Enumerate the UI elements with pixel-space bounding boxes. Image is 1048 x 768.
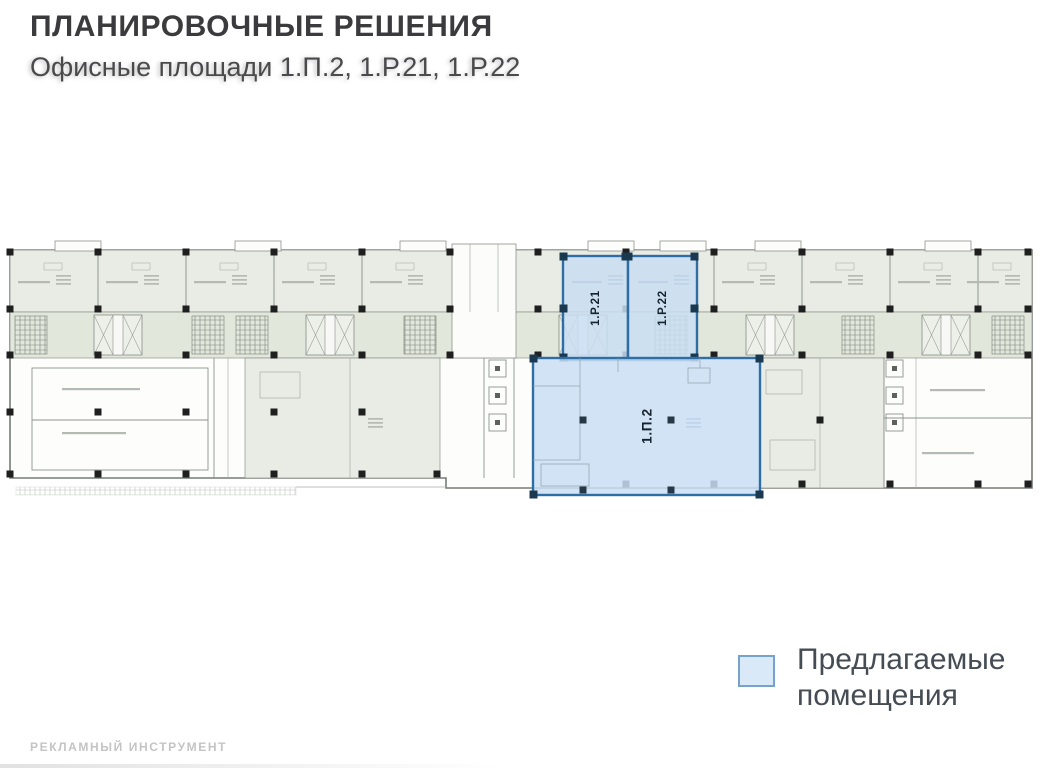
annotation-mini	[760, 283, 775, 285]
column	[359, 409, 366, 416]
annotation-mini	[408, 275, 423, 277]
annotation-mini	[320, 275, 335, 277]
annotation-mini	[320, 279, 335, 281]
annotation-dash	[194, 281, 226, 283]
elevator-core	[15, 316, 47, 354]
annotation-dash	[282, 281, 314, 283]
column	[183, 409, 190, 416]
elevator-core	[842, 316, 874, 354]
column	[7, 409, 14, 416]
annotation-dash	[62, 388, 140, 390]
footer-brand: РЕКЛАМНЫЙ ИНСТРУМЕНТ	[30, 740, 227, 754]
column	[1025, 352, 1032, 359]
column	[975, 306, 982, 313]
annotation-mini	[144, 275, 159, 277]
facade-bay	[755, 241, 801, 251]
column	[95, 409, 102, 416]
annotation-mini	[320, 283, 335, 285]
facade-bay	[925, 241, 971, 251]
annotation-dash	[62, 432, 126, 434]
column	[271, 249, 278, 256]
column	[359, 471, 366, 478]
column	[183, 352, 190, 359]
column	[535, 306, 542, 313]
column	[817, 417, 824, 424]
column	[711, 306, 718, 313]
elevator-core	[404, 316, 436, 354]
stair-core	[306, 315, 354, 355]
column	[975, 481, 982, 488]
column	[95, 249, 102, 256]
column	[434, 471, 441, 478]
room-label-1p2: 1.П.2	[640, 408, 655, 444]
legend-label: Предлагаемые помещения	[797, 642, 1032, 714]
annotation-mini	[408, 283, 423, 285]
annotation-mini	[232, 275, 247, 277]
column	[975, 249, 982, 256]
annotation-dash	[370, 281, 402, 283]
annotation-mini	[56, 279, 71, 281]
facade-bay	[55, 241, 101, 251]
room-label-1r22: 1.Р.22	[657, 290, 669, 326]
column	[1025, 306, 1032, 313]
column	[975, 352, 982, 359]
annotation-mini	[1005, 283, 1020, 285]
annotation-mini	[848, 283, 863, 285]
column	[887, 352, 894, 359]
column	[95, 471, 102, 478]
annotation-mini	[936, 279, 951, 281]
column	[799, 249, 806, 256]
annotation-dash	[922, 452, 974, 454]
annotation-mini	[232, 279, 247, 281]
annotation-dash	[722, 281, 754, 283]
annotation-dash	[18, 281, 50, 283]
annotation-mini	[368, 426, 383, 428]
facade-bay	[400, 241, 446, 251]
column	[799, 306, 806, 313]
annotation-dash	[967, 281, 999, 283]
annotation-mini	[936, 283, 951, 285]
stair-core	[746, 315, 794, 355]
column	[711, 249, 718, 256]
column	[183, 471, 190, 478]
column	[1025, 481, 1032, 488]
column	[799, 352, 806, 359]
column	[271, 471, 278, 478]
annotation-mini	[936, 275, 951, 277]
column	[359, 249, 366, 256]
annotation-mini	[56, 283, 71, 285]
column	[7, 249, 14, 256]
column	[447, 249, 454, 256]
column	[7, 306, 14, 313]
elevator-core	[236, 316, 268, 354]
column	[271, 352, 278, 359]
building-shell	[10, 244, 1032, 488]
column	[359, 352, 366, 359]
highlighted-room-1r21: 1.Р.21	[560, 253, 630, 362]
elevator-core	[192, 316, 224, 354]
annotation-dash	[898, 281, 930, 283]
column	[7, 471, 14, 478]
column	[271, 409, 278, 416]
stair-core	[922, 315, 970, 355]
highlighted-room-1r22: 1.Р.22	[625, 253, 699, 362]
facade-bay	[660, 241, 706, 251]
legend-swatch	[738, 655, 775, 687]
column	[359, 306, 366, 313]
annotation-mini	[144, 279, 159, 281]
annotation-mini	[760, 275, 775, 277]
annotation-mini	[368, 418, 383, 420]
annotation-dash	[106, 281, 138, 283]
column	[183, 249, 190, 256]
slide: ПЛАНИРОВОЧНЫЕ РЕШЕНИЯ Офисные площади 1.…	[0, 0, 1048, 768]
column	[95, 306, 102, 313]
elevator-core	[992, 316, 1024, 354]
column	[535, 249, 542, 256]
annotation-mini	[232, 283, 247, 285]
column	[7, 352, 14, 359]
annotation-mini	[760, 279, 775, 281]
annotation-mini	[848, 275, 863, 277]
column	[1025, 249, 1032, 256]
annotation-mini	[1005, 279, 1020, 281]
annotation-dash	[930, 389, 985, 391]
column	[447, 352, 454, 359]
room-label-1r21: 1.Р.21	[590, 290, 602, 326]
column	[271, 306, 278, 313]
annotation-mini	[56, 275, 71, 277]
annotation-mini	[848, 279, 863, 281]
column	[799, 481, 806, 488]
column	[887, 249, 894, 256]
column	[887, 481, 894, 488]
column	[95, 352, 102, 359]
highlighted-room-1p2: 1.П.2	[530, 355, 764, 499]
stair-core	[94, 315, 142, 355]
annotation-mini	[1005, 275, 1020, 277]
annotation-mini	[144, 283, 159, 285]
annotation-mini	[408, 279, 423, 281]
column	[887, 306, 894, 313]
annotation-mini	[368, 422, 383, 424]
legend: Предлагаемые помещения	[738, 642, 1032, 714]
annotation-dash	[810, 281, 842, 283]
column	[447, 306, 454, 313]
column	[183, 306, 190, 313]
